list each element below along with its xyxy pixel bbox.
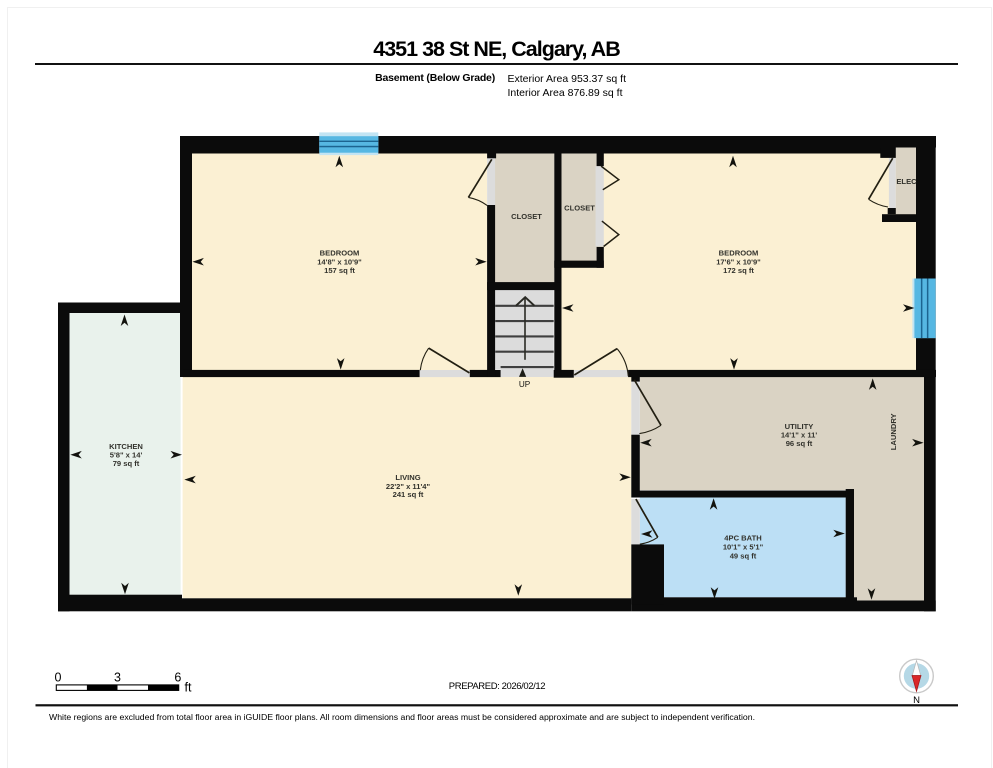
svg-text:ELEC: ELEC bbox=[896, 177, 917, 186]
svg-text:96 sq ft: 96 sq ft bbox=[786, 439, 813, 448]
svg-text:6: 6 bbox=[174, 670, 181, 684]
svg-text:BEDROOM: BEDROOM bbox=[719, 249, 759, 258]
svg-text:KITCHEN: KITCHEN bbox=[109, 442, 143, 451]
svg-text:LAUNDRY: LAUNDRY bbox=[889, 413, 898, 450]
svg-text:172 sq ft: 172 sq ft bbox=[723, 266, 754, 275]
svg-text:UTILITY: UTILITY bbox=[785, 422, 814, 431]
svg-text:PREPARED: 2026/02/12: PREPARED: 2026/02/12 bbox=[449, 681, 546, 692]
svg-text:White regions are excluded fro: White regions are excluded from total fl… bbox=[49, 712, 755, 722]
svg-text:10'1" x 5'1": 10'1" x 5'1" bbox=[723, 542, 764, 551]
svg-text:241 sq ft: 241 sq ft bbox=[393, 490, 424, 499]
svg-text:ft: ft bbox=[185, 680, 192, 694]
svg-text:UP: UP bbox=[519, 380, 531, 389]
svg-text:157 sq ft: 157 sq ft bbox=[324, 266, 355, 275]
svg-text:CLOSET: CLOSET bbox=[511, 212, 542, 221]
svg-text:LIVING: LIVING bbox=[395, 473, 420, 482]
svg-text:CLOSET: CLOSET bbox=[564, 203, 595, 212]
svg-text:79 sq ft: 79 sq ft bbox=[113, 459, 140, 468]
svg-text:49 sq ft: 49 sq ft bbox=[730, 551, 757, 560]
svg-text:4PC BATH: 4PC BATH bbox=[724, 534, 761, 543]
svg-text:BEDROOM: BEDROOM bbox=[320, 249, 360, 258]
svg-text:3: 3 bbox=[114, 670, 121, 684]
svg-text:0: 0 bbox=[55, 670, 62, 684]
